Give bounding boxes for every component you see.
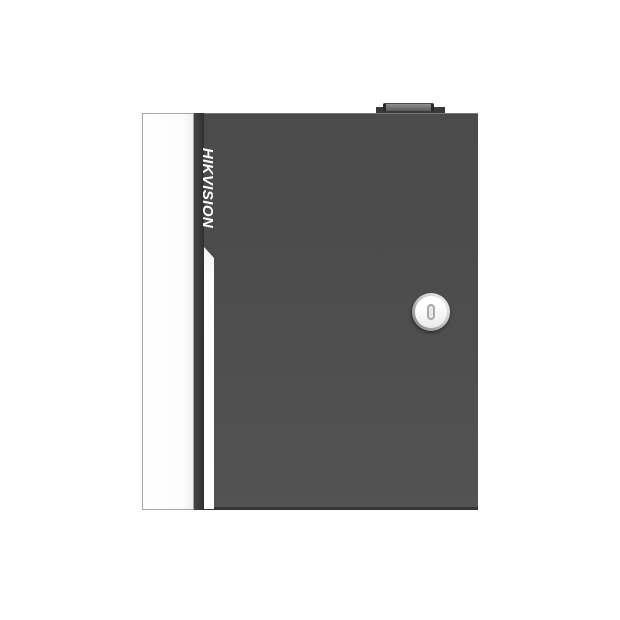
product-photo: HIKVISION xyxy=(0,0,620,620)
enclosure-side-panel xyxy=(142,113,194,510)
keyhole-icon xyxy=(427,304,435,320)
lock-face xyxy=(415,296,447,328)
keyhole-slot xyxy=(429,306,433,318)
door-lock xyxy=(412,293,450,331)
accent-stripe xyxy=(204,247,214,509)
top-latch-tab xyxy=(383,103,434,111)
enclosure-front-door: HIKVISION xyxy=(194,113,478,510)
brand-logo-text: HIKVISION xyxy=(197,138,217,238)
access-controller-enclosure: HIKVISION xyxy=(142,113,478,510)
